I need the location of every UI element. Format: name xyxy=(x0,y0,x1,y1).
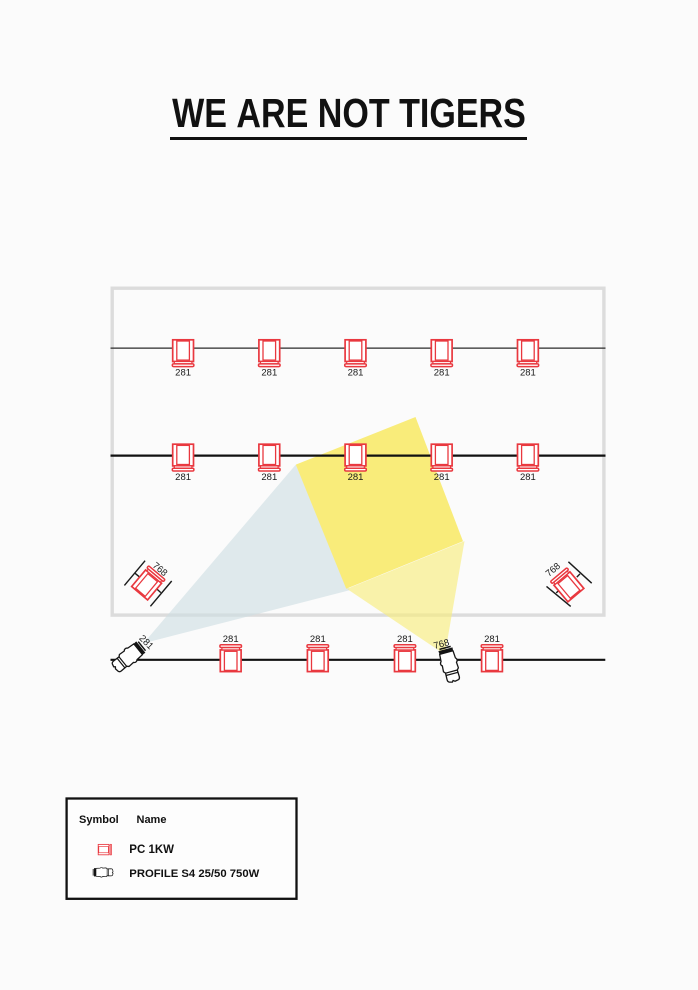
svg-text:281: 281 xyxy=(175,368,191,379)
svg-text:281: 281 xyxy=(348,368,364,379)
svg-text:281: 281 xyxy=(175,472,191,483)
svg-text:281: 281 xyxy=(434,472,450,483)
svg-text:281: 281 xyxy=(520,472,536,483)
svg-text:281: 281 xyxy=(484,634,500,645)
svg-text:Symbol: Symbol xyxy=(79,814,119,826)
svg-text:PROFILE S4 25/50 750W: PROFILE S4 25/50 750W xyxy=(129,868,259,880)
svg-text:281: 281 xyxy=(434,368,450,379)
svg-text:281: 281 xyxy=(310,634,326,645)
svg-text:PC 1KW: PC 1KW xyxy=(129,844,174,856)
svg-text:Name: Name xyxy=(137,814,167,826)
svg-text:281: 281 xyxy=(261,368,277,379)
svg-text:281: 281 xyxy=(520,368,536,379)
svg-text:281: 281 xyxy=(261,472,277,483)
svg-text:281: 281 xyxy=(348,472,364,483)
svg-text:281: 281 xyxy=(397,634,413,645)
svg-text:281: 281 xyxy=(223,634,239,645)
